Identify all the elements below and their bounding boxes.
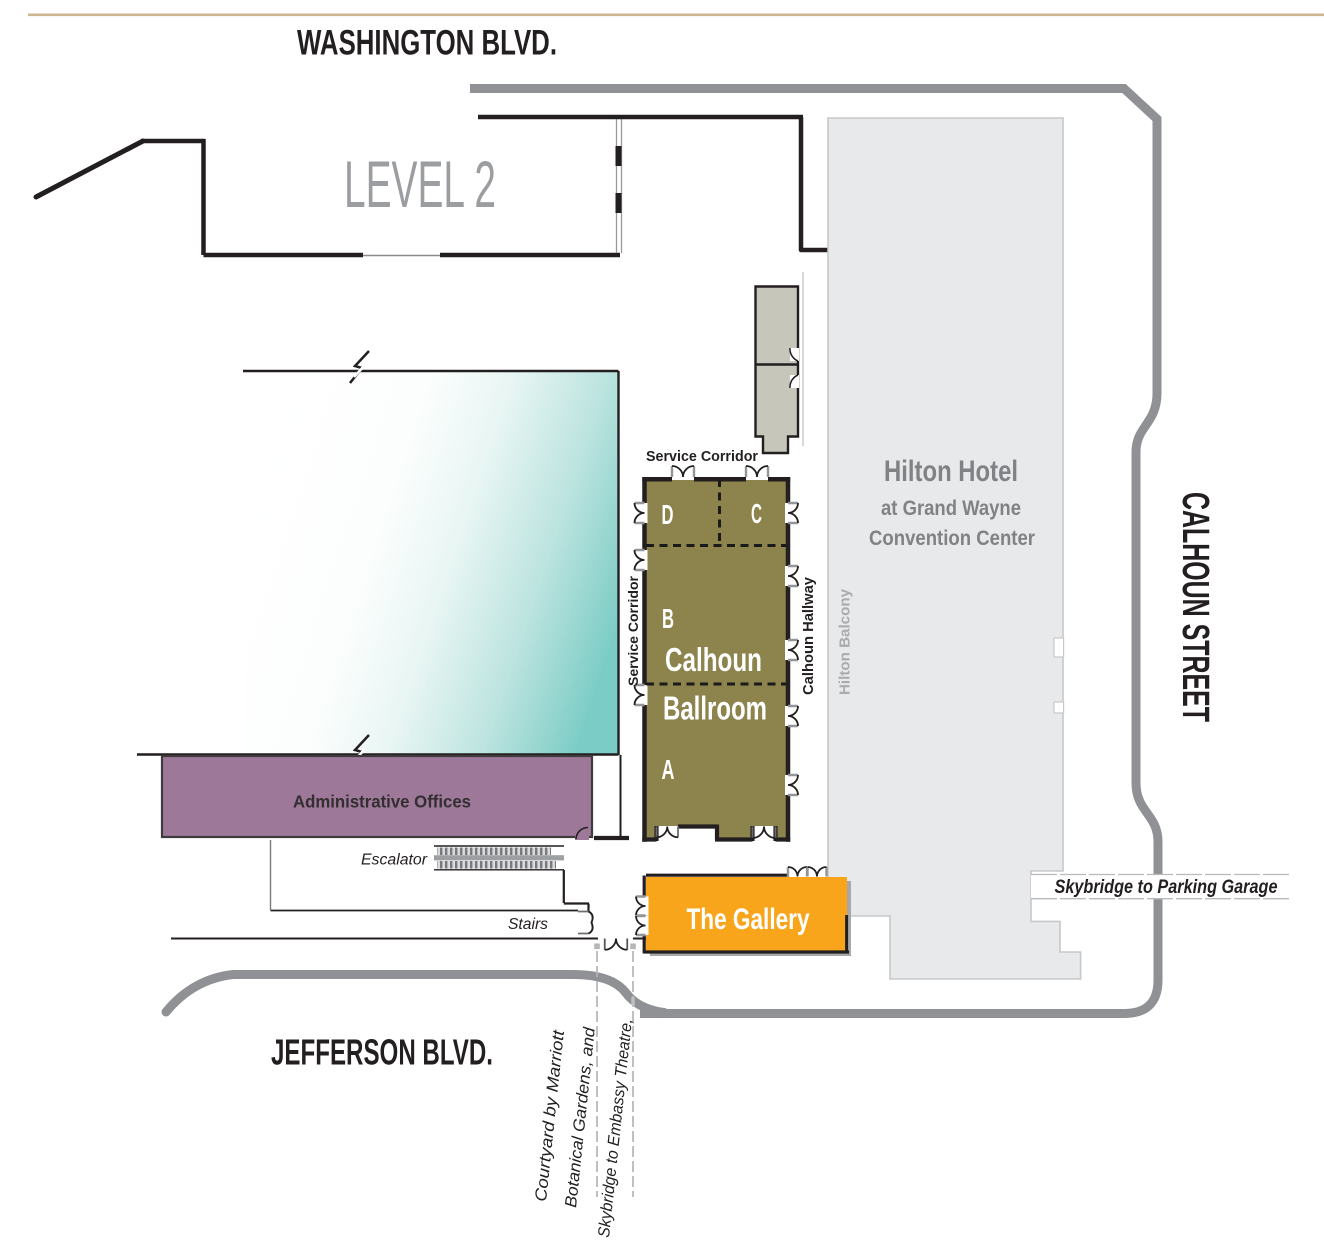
svg-text:Service Corridor: Service Corridor [626,575,641,686]
svg-text:LEVEL 2: LEVEL 2 [344,147,496,221]
svg-text:Hilton Hotel: Hilton Hotel [884,455,1018,488]
svg-text:WASHINGTON BLVD.: WASHINGTON BLVD. [297,24,557,63]
svg-text:Escalator: Escalator [361,852,428,869]
svg-text:CALHOUN STREET: CALHOUN STREET [1174,492,1216,722]
svg-text:Service Corridor: Service Corridor [646,449,758,465]
svg-text:B: B [662,603,674,634]
svg-text:Skybridge to Embassy Theatre,: Skybridge to Embassy Theatre, [595,1018,636,1239]
svg-text:Calhoun Hallway: Calhoun Hallway [801,577,817,695]
svg-text:Stairs: Stairs [508,916,548,933]
svg-text:Convention Center: Convention Center [869,527,1035,550]
svg-text:Administrative Offices: Administrative Offices [293,792,471,812]
svg-text:C: C [751,498,762,529]
svg-text:Ballroom: Ballroom [663,690,767,727]
svg-text:JEFFERSON BLVD.: JEFFERSON BLVD. [271,1032,493,1073]
svg-text:at Grand Wayne: at Grand Wayne [881,497,1021,520]
svg-text:Calhoun: Calhoun [665,641,762,678]
svg-text:Hilton Balcony: Hilton Balcony [837,588,854,695]
svg-text:Botanical Gardens, and: Botanical Gardens, and [562,1026,599,1209]
svg-text:The Gallery: The Gallery [687,903,810,936]
svg-text:Courtyard by Marriott: Courtyard by Marriott [532,1028,568,1202]
svg-text:D: D [662,499,674,530]
svg-text:Skybridge to Parking Garage: Skybridge to Parking Garage [1055,877,1278,898]
svg-text:A: A [662,754,675,785]
